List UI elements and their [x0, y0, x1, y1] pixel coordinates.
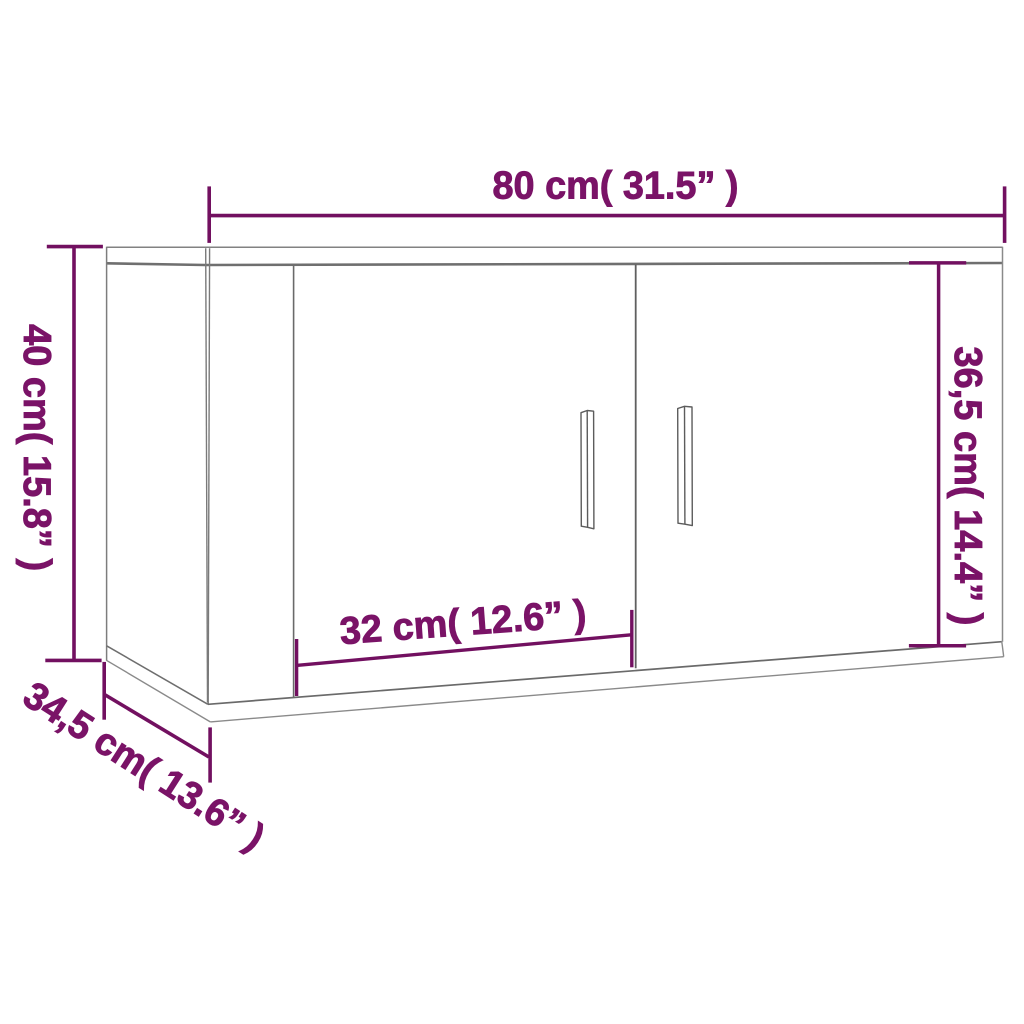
svg-text:36,5 cm( 14.4” ): 36,5 cm( 14.4” ): [946, 346, 989, 625]
svg-text:80 cm( 31.5” ): 80 cm( 31.5” ): [493, 165, 739, 208]
svg-text:40 cm( 15.8” ): 40 cm( 15.8” ): [15, 324, 58, 571]
